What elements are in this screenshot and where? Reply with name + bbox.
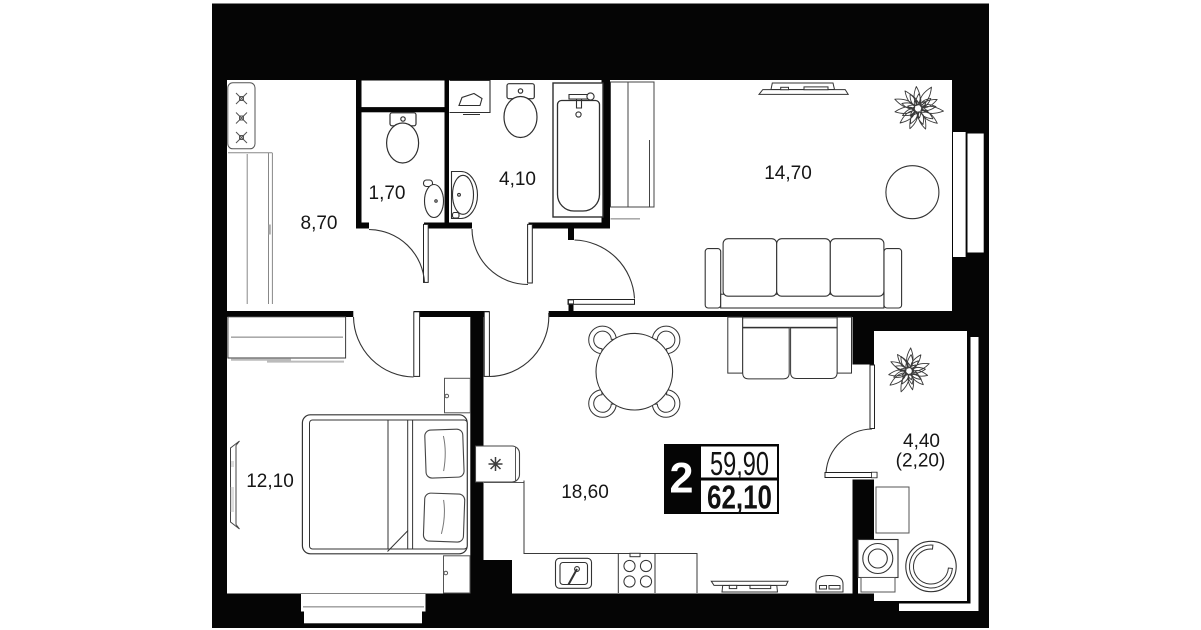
svg-text:8,70: 8,70 (301, 213, 338, 234)
svg-text:4,10: 4,10 (499, 169, 536, 190)
svg-text:12,10: 12,10 (246, 471, 294, 492)
svg-text:4,40: 4,40 (903, 431, 940, 452)
svg-text:(2,20): (2,20) (896, 451, 946, 472)
svg-text:59,90: 59,90 (710, 445, 769, 482)
svg-text:1,70: 1,70 (369, 183, 406, 204)
svg-text:2: 2 (670, 455, 694, 503)
svg-text:14,70: 14,70 (764, 163, 812, 184)
svg-text:18,60: 18,60 (561, 482, 609, 503)
svg-text:62,10: 62,10 (707, 479, 772, 516)
